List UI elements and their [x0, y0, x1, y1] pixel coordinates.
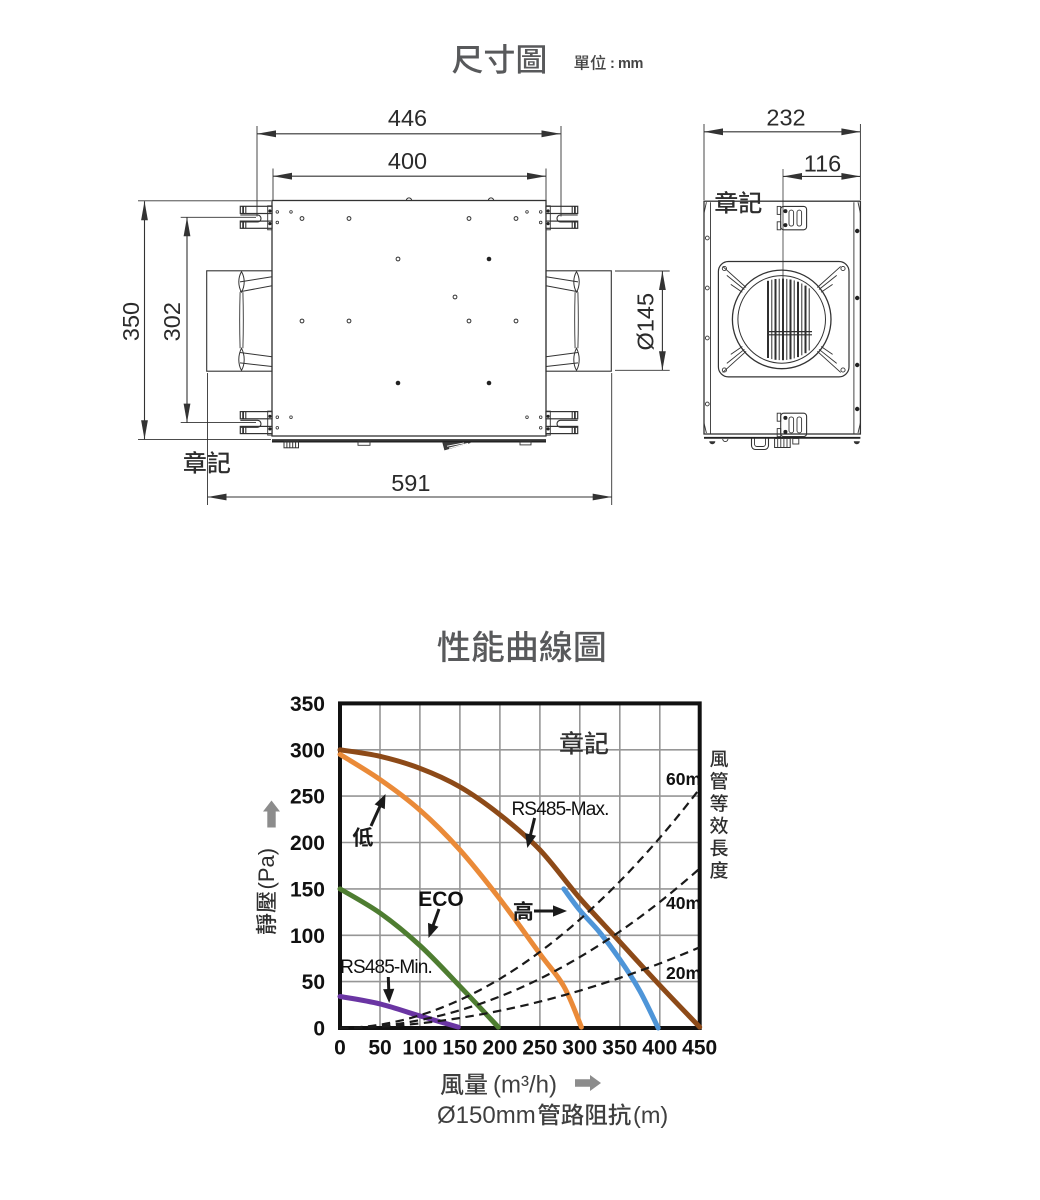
svg-text:50: 50 — [302, 971, 325, 994]
svg-text:400: 400 — [388, 148, 427, 174]
svg-text:0: 0 — [334, 1037, 346, 1060]
svg-text:20m: 20m — [666, 963, 701, 983]
svg-text:0: 0 — [313, 1018, 325, 1041]
svg-text:50: 50 — [368, 1037, 391, 1060]
svg-text:100: 100 — [290, 925, 325, 948]
svg-text:(m): (m) — [633, 1102, 668, 1128]
svg-text:ECO: ECO — [418, 888, 464, 911]
svg-text:350: 350 — [602, 1037, 637, 1060]
svg-text:232: 232 — [766, 104, 805, 130]
svg-text:446: 446 — [388, 105, 427, 131]
svg-text:302: 302 — [159, 302, 185, 341]
svg-text:Ø150mm: Ø150mm — [437, 1102, 536, 1129]
svg-text:450: 450 — [682, 1037, 717, 1060]
svg-text:150: 150 — [442, 1037, 477, 1060]
svg-text:250: 250 — [290, 786, 325, 809]
svg-text:RS485-Min.: RS485-Min. — [340, 957, 432, 978]
svg-text:RS485-Max.: RS485-Max. — [511, 799, 608, 820]
svg-text:116: 116 — [804, 150, 841, 176]
svg-text:350: 350 — [290, 693, 325, 716]
svg-text:40m: 40m — [666, 893, 701, 913]
svg-text:250: 250 — [522, 1037, 557, 1060]
svg-text:100: 100 — [402, 1037, 437, 1060]
svg-text:(m³/h): (m³/h) — [493, 1072, 557, 1099]
svg-text:200: 200 — [290, 832, 325, 855]
svg-text:200: 200 — [482, 1037, 517, 1060]
svg-text:591: 591 — [391, 470, 430, 496]
svg-text:(Pa): (Pa) — [254, 848, 279, 890]
svg-text:60m: 60m — [666, 769, 701, 789]
svg-text:300: 300 — [562, 1037, 597, 1060]
svg-text:350: 350 — [118, 302, 144, 341]
svg-text:300: 300 — [290, 739, 325, 762]
svg-text:400: 400 — [642, 1037, 677, 1060]
svg-text:: mm: : mm — [610, 56, 643, 72]
svg-text:Ø145: Ø145 — [632, 293, 658, 351]
svg-text:150: 150 — [290, 878, 325, 901]
